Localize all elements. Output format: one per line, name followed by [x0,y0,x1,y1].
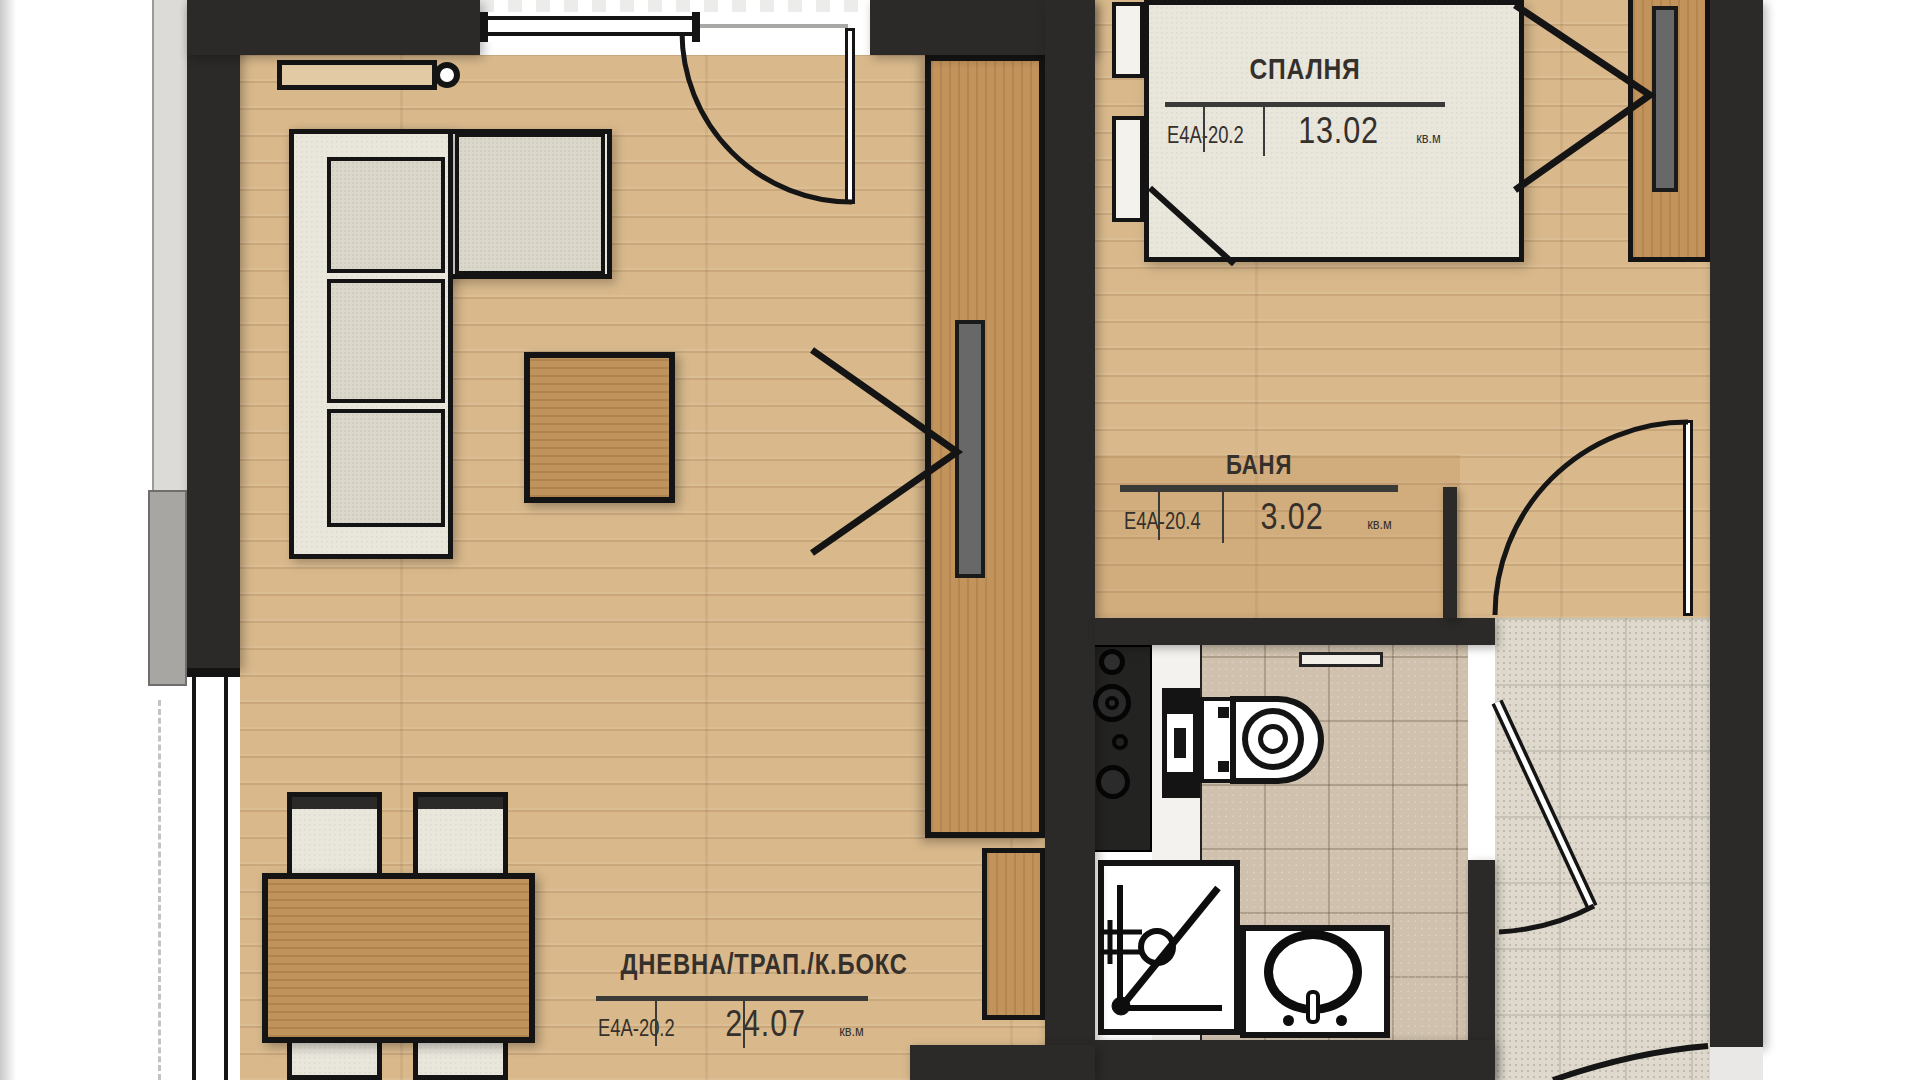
chair-back-rail [418,797,503,809]
terrace-door-leaf [845,28,855,204]
window-glass-line [480,32,700,36]
wall-stub-banya [1443,487,1457,618]
sofa-cushion-3 [327,409,445,527]
stove-burner-small-top [1099,649,1125,675]
room-name: СПАЛНЯ [1190,52,1420,86]
dimension-tick [1203,104,1205,152]
window-top [480,12,700,42]
unit-code: Е4А-20.2 [598,1015,675,1042]
room-area: 13.02 [1298,110,1379,152]
wall-left [187,0,240,668]
dimension-tick [1158,490,1160,540]
dimension-tick [1263,102,1265,156]
radiator [277,60,437,90]
window-sill-line [700,24,848,28]
stove-burner-small-bottom [1096,765,1130,799]
label-rule [1120,485,1398,492]
window-jamb [480,12,488,42]
chair-back-rail [292,797,377,809]
window-left [187,668,240,1080]
wall-top-left [187,0,480,55]
dining-table [262,873,535,1043]
coffee-table [524,352,675,503]
corridor-door-leaf [1683,420,1693,616]
canopy-dashed-line [158,700,161,1080]
unit-code: Е4А-20.4 [1124,508,1201,535]
stove-burner-inner-ring [1105,696,1119,710]
room-label-living: ДНЕВНА/ТРАП./К.БОКС Е4А-20.2 24.07 кв.м [596,948,868,1043]
room-label-bath: БАНЯ Е4А-20.4 3.02 кв.м [1120,450,1398,545]
nightstand-bottom [1112,116,1144,222]
area-unit: кв.м [839,1022,864,1039]
room-label-bedroom: СПАЛНЯ Е4А-20.2 13.02 кв.м [1165,52,1445,156]
floor-plan: СПАЛНЯ Е4А-20.2 13.02 кв.м БАНЯ Е4А-20.4… [0,0,1920,1080]
wall-right [1710,0,1763,1047]
sofa-chaise-cushion [455,133,605,275]
washbasin-dot-right [1336,1015,1347,1026]
nightstand-top [1112,2,1144,78]
toilet-hinge-top [1218,707,1229,718]
exterior-gray-panel [148,490,187,686]
washbasin-tap [1306,990,1320,1024]
wall-bathroom-bottom [1095,1040,1495,1080]
toilet-cistern-bracket [1162,688,1200,798]
room-name: ДНЕВНА/ТРАП./К.БОКС [620,948,843,981]
toilet-tank [1200,697,1234,783]
cabinet-sliding-door-slot [955,320,985,578]
window-frame-line [224,668,228,1080]
label-rule [596,996,868,1001]
dimension-tick [1222,488,1224,543]
washbasin-dot-left [1283,1015,1294,1026]
sofa-cushion-1 [327,157,445,273]
wardrobe-sliding-door-slot [1652,6,1678,192]
entry-hall-floor [1495,618,1710,1080]
area-unit: кв.м [1367,515,1392,532]
entrance-opening [1710,1047,1763,1080]
wall-center-partition [1045,0,1095,1080]
area-unit: кв.м [1416,129,1441,146]
stove-burner-large [1093,684,1131,722]
room-name: БАНЯ [1145,450,1373,481]
sofa-cushion-2 [327,279,445,403]
room-area: 3.02 [1261,496,1324,538]
cistern-core [1174,728,1186,758]
label-rule [1165,102,1445,107]
toilet-hinge-bottom [1218,761,1229,772]
wall-bottom-middle [910,1045,1095,1080]
window-frame-line [192,668,196,1080]
window-glass-line [480,16,700,20]
bathroom-shelf [1299,652,1383,667]
terrace-edge-checker [480,0,870,12]
tall-cabinet [925,55,1045,838]
entry-closet [982,848,1045,1020]
dimension-tick [743,996,745,1048]
page-edge-gradient [0,0,16,1080]
toilet-bowl-inner [1258,724,1288,754]
shower-tray [1098,860,1240,1035]
stove-burner-dot [1112,734,1128,750]
unit-code: Е4А-20.2 [1167,122,1244,149]
dimension-tick [655,998,657,1046]
window-head-jamb [187,668,240,677]
room-area: 24.07 [725,1003,806,1045]
wall-bathroom-top [1095,618,1495,645]
radiator-valve-icon [434,62,460,88]
window-jamb [692,12,700,42]
